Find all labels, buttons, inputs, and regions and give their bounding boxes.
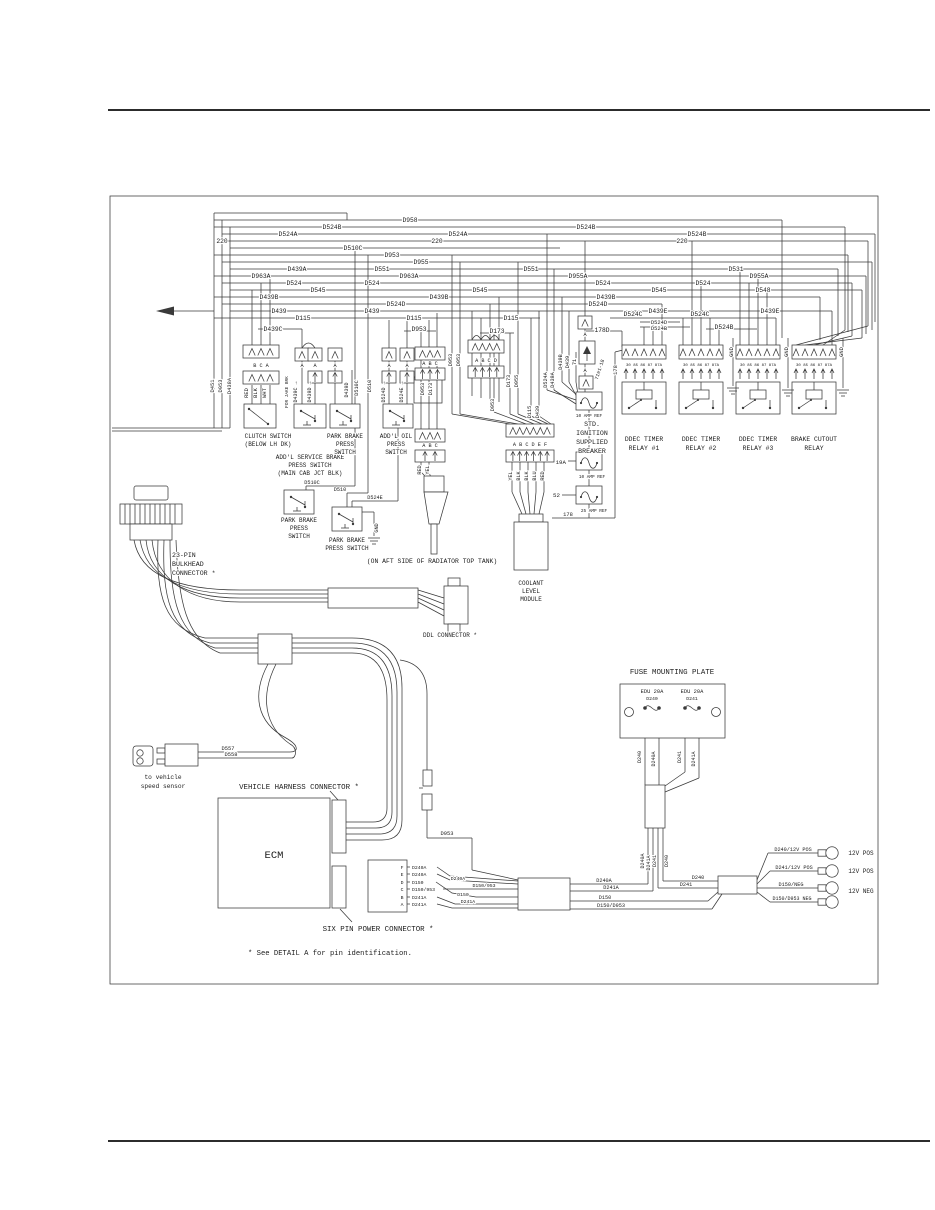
wire-label: D115 [295,315,310,322]
diode-block [579,341,595,364]
wire-label: 71#1-18 [594,359,606,381]
ring-terminal-12v-neg [818,896,838,908]
ground-icon [368,538,380,544]
wire-label: D558 [225,752,238,758]
wire-label: BLK [516,470,522,480]
harness-path [437,904,518,908]
pin-label: A [300,363,304,369]
inline-connector [423,770,432,786]
component-label: BRAKE CUTOUT [791,436,837,443]
component-label: PRESS [290,525,308,532]
connector-row [243,371,279,384]
wire-label: D241A [603,885,619,891]
connector-row [243,345,279,358]
component-label: 23-PIN [172,552,196,559]
note-label: * See DETAIL A for pin identification. [248,950,412,958]
harness-path [267,664,296,758]
component-label: ECM [265,850,284,862]
wire-label: D240A [651,751,657,766]
harness-path [302,343,315,348]
wire-label: D953 [384,252,399,259]
wire-label: D953 [420,383,426,395]
wire [460,414,518,424]
component-label: DDL CONNECTOR * [423,632,477,639]
breaker-10a [576,392,602,410]
wire-label: D173 [489,328,504,335]
component-label: CLUTCH SWITCH [245,433,292,440]
wire [757,892,770,902]
wire-label: D150/953 [412,887,435,893]
wire [554,390,576,404]
pin-label: A [387,363,391,369]
wire-label: D510C [344,245,363,252]
pin-label: 30 85 86 87 87A [626,364,663,368]
wire-label: D241 [677,751,683,763]
pin-label: A [313,363,317,369]
wire-label: D524A [543,371,549,387]
wire [757,871,770,884]
wire-label: 178 [563,512,573,518]
wire-label: D953 [490,399,496,411]
harness-path [400,660,427,770]
wire-label: D240/12V POS [774,847,811,853]
wire-label: D524 [695,280,710,287]
harness-path [346,653,387,822]
wire-label: D531 [728,266,743,273]
wire [757,853,768,880]
pin-label: A [583,368,587,374]
components [120,341,757,912]
wire-label: D150 [599,895,611,901]
component-label: VEHICLE HARNESS CONNECTOR * [239,784,359,792]
wire-label: D524B [651,326,668,332]
component-label: PARK BRAKE [327,433,363,440]
wire-label: D241 [686,696,698,702]
wire-label: D524A [449,231,468,238]
component-label: 12V POS [848,868,874,875]
wire-label: D439E [761,308,780,315]
component-label: (BELOW LH DK) [245,441,292,448]
wire-label: D241A [691,751,697,766]
wire [330,791,338,800]
wire-label: D439 [565,356,571,368]
connector-row [468,340,504,353]
wire-label: D439B [430,294,449,301]
component-label: LEVEL [522,588,540,595]
note-label: (ON AFT SIDE OF RADIATOR TOP TANK) [367,558,497,565]
pin-label: A B C D E F [513,442,547,448]
wire-label: 71 [572,359,578,365]
wire-label: D524D [387,301,406,308]
component-label: RELAY #3 [743,445,774,452]
wire-label: D241A [461,899,476,905]
wire-label: D955A [569,273,588,280]
wire-label: D150/NEG [779,882,804,888]
coolant-probe [424,476,448,554]
connector-row [328,348,342,361]
wire-label: D545 [310,287,325,294]
wire-label: WHT [262,387,268,397]
six-pin-power-connector [332,866,346,908]
ring-terminal-12v-pos [818,847,838,859]
component-label: MODULE [520,596,542,603]
wire-label: D524C [691,311,710,318]
wire-label: D963A [252,273,271,280]
wire-label: D439C [264,326,283,333]
wire-label: D524 [286,280,301,287]
inline-connector [422,794,432,810]
wire [418,590,444,598]
component-label: EDU 20A [641,689,664,695]
harness-path [259,664,297,752]
component-label: SUPPLIED [576,439,608,446]
wire-label: D240 [646,696,658,702]
component-label: 12V POS [848,850,874,857]
pin-label: A [583,332,587,338]
fuse-output-junction [645,785,665,828]
brake-cutout-relay [792,345,836,414]
wire-label: D439D [344,382,350,397]
component-label: SIX PIN POWER CONNECTOR * [323,926,434,934]
component-label: PRESS SWITCH [325,545,369,552]
component-label: PRESS [336,441,354,448]
bulkhead-connector [120,486,182,540]
pin-label: F [401,865,404,871]
wire-label: 220 [216,238,228,245]
wire-label: D439A [550,371,556,387]
wire-label: D953 [441,831,454,837]
clutch-switch-box [244,404,276,428]
component-label: BREAKER [578,448,606,455]
component-label: DDEC TIMER [682,436,721,443]
wire [665,778,699,792]
component-label: to vehicle [144,774,181,781]
component-label: 10 AMP REF [579,475,606,480]
wire-label: D953 [456,354,462,366]
harness-junction [258,634,292,664]
component-label: RELAY [804,445,823,452]
wire-label: D451 [210,380,216,393]
component-label: (MAIN CAB JCT BLK) [278,470,343,477]
wire-label: D524E [367,495,383,501]
manual-page: D958D524BD524BD524AD524AD524B220220220D5… [0,0,935,1210]
wire-label: D953 [448,354,454,366]
coolant-level-module [514,514,548,570]
wire-label: D439 [364,308,379,315]
wire-label: D240A [412,872,427,878]
wire-label: GND [374,523,380,532]
connector-row [506,424,554,437]
connector-row [415,347,445,360]
pin-label: 30 85 86 87 87A [796,364,833,368]
harness-path [437,897,518,904]
component-label: PARK BRAKE [281,517,317,524]
wire-label: D241 [652,855,658,867]
component-label: STD. [584,421,600,428]
pin-label: B [401,895,404,901]
wire-label: FOR JAKE BRK [285,376,290,408]
wire-label: D510 [334,487,346,493]
component-label: 10 AMP REF [576,414,603,419]
wire-label: D545 [472,287,487,294]
connector-row [415,450,445,462]
wire-label: BLK [253,387,259,397]
component-label: SWITCH [334,449,356,456]
wire-label: D545 [651,287,666,294]
component-label: 25 AMP REF [581,509,608,514]
wire-label: D439A [288,266,307,273]
pin-label: A [333,363,337,369]
connector-row [382,348,396,361]
wire-label: D439D → [307,381,313,402]
harness-wrap [328,588,418,608]
connector-row [295,348,309,361]
harness-path [437,867,518,881]
pin-label: A [405,363,409,369]
wire-label: D953 [411,326,426,333]
wire-label: D524 [595,280,610,287]
wire-label: D240A [596,878,612,884]
pin-label: A B C [422,443,438,449]
wire [418,594,444,604]
component-label: PARK BRAKE [329,537,365,544]
wire-label: D173 [506,375,512,387]
ddec-timer-relay-2 [679,345,723,414]
harness-path [472,336,499,341]
component-label: PRESS SWITCH [288,462,332,469]
wire-label: D955 [514,375,520,387]
wire-label: D551 [523,266,538,273]
wire-label: D524C [624,311,643,318]
wire-label: D439E [649,308,668,315]
wire-label: D958 [402,217,417,224]
wire-label: BLU [532,471,538,480]
wire [534,492,536,514]
breaker-52 [576,486,602,504]
pin-label: A B C D [475,358,497,364]
wiring-diagram: D958D524BD524BD524AD524AD524B220220220D5… [0,0,935,1210]
wire-label: D510 [367,380,373,392]
component-label: ADD'L OIL [380,433,413,440]
wire-label: D955A [750,273,769,280]
component-label: SWITCH [385,449,407,456]
fuse-mounting-plate [620,684,725,738]
wire-label: D524B [688,231,707,238]
wire-label: D439C → [293,381,299,402]
wire-label: D150 [457,892,469,898]
wire-label: D240 [692,875,704,881]
wire-label: GND [784,347,790,357]
wire-label: D240A [451,876,466,882]
wire-label: D524B [577,224,596,231]
wire-label: D551 [374,266,389,273]
harness-path [346,643,397,834]
vehicle-harness-connector [332,800,346,853]
wire-label: D955 [413,259,428,266]
component-label: EDU 20A [681,689,704,695]
wire [708,892,718,901]
connector-row [468,366,504,378]
wire-label: D524B [323,224,342,231]
wire-label: D241/12V POS [775,865,812,871]
wire [665,772,685,786]
wire-label: D115 [503,315,518,322]
wire-label: BLK [524,470,530,480]
wire-label: D115 [406,315,421,322]
component-label: CONNECTOR * [172,570,216,577]
wire [452,414,510,424]
pin-label: A B C [422,361,438,367]
component-label: SWITCH [288,533,310,540]
wire-label: D524D → [381,381,387,402]
wire-label: D439 [271,308,286,315]
wire-label: YEL [508,471,514,480]
wire-label: YEL [425,465,431,474]
wire [528,492,530,514]
ddec-timer-relay-1 [622,345,666,414]
ring-terminal-12v-neg [818,882,838,894]
wire-label: 178 [613,365,619,375]
wire-label: D438A [227,377,233,394]
wire-label: D439 [535,406,541,418]
wire [539,492,544,514]
ring-terminal-12v-pos [818,865,838,877]
connector-row [578,316,592,329]
component-label: IGNITION [576,430,608,437]
wire-label: D173 [428,383,434,395]
wire-label: D510C [304,480,320,486]
wire-label: GND [839,347,845,357]
pin-label: A [401,902,404,908]
wire-label: D439B [260,294,279,301]
wire-label: D963A [400,273,419,280]
wire-label: D150/953 [472,883,495,889]
wire-label: D439B [558,354,564,370]
pin-label: C [401,887,404,893]
speed-sensor [133,744,198,766]
component-label: speed sensor [141,783,186,790]
wire-label: GND [729,347,735,357]
wire-label: 52 [553,492,560,499]
wire-label: D150/D953 [597,903,625,909]
component-label: FUSE MOUNTING PLATE [630,669,715,677]
component-label: COOLANT [518,580,544,587]
wire-label: RED [540,471,546,480]
wire [340,909,352,922]
wire-label: D524 [364,280,379,287]
pin-label: D [401,880,404,886]
power-junction-box [518,878,570,910]
wire-label: RED [244,388,250,398]
component-label: RELAY #1 [629,445,660,452]
wire-label: D240A [412,865,427,871]
wire-label: D548 [755,287,770,294]
wire-label: D524E → [399,381,405,402]
left-arrow-icon [156,307,174,316]
wire [512,492,522,514]
component-label: RELAY #2 [686,445,717,452]
component-label: DDEC TIMER [625,436,664,443]
pin-label: B C A [253,363,269,369]
wire-label: 220 [676,238,688,245]
wire-label: D524D [589,301,608,308]
wire-label: D524A [279,231,298,238]
pin-label: E [401,872,404,878]
page-rules [108,110,930,1141]
wire-label: 220 [431,238,443,245]
ddl-connector [444,578,468,632]
wire-label: D241A [412,895,427,901]
pin-label: 30 85 86 87 87A [683,364,720,368]
wire-label: D510C [354,380,360,396]
harness-path [346,648,392,828]
component-label: BULKHEAD [172,561,204,568]
wire [805,338,862,345]
pin-label: 30 85 86 87 87A [740,364,777,368]
wire-label: D115 [527,406,533,418]
wire-label: 178D [594,327,609,334]
wire-label: D150 [412,880,424,886]
wire-label: D953 [218,380,224,393]
wire-label: D150/D953 NEG [772,896,811,902]
ground-icon [837,390,849,396]
connector-row [415,429,445,442]
component-label: 12V NEG [848,888,874,895]
terminal-junction-box [718,876,757,894]
component-label: PRESS [387,441,405,448]
connector-row [308,348,322,361]
wire-label: 19A [556,459,567,466]
wire-label: D439B [597,294,616,301]
wire-label: D240 [664,855,670,867]
wire-label: D524B [715,324,734,331]
wire-label: D241A [412,902,427,908]
component-label: DDEC TIMER [739,436,778,443]
wire-label: D241 [680,882,692,888]
connector-row [400,348,414,361]
ddec-timer-relay-3 [736,345,780,414]
wire-label: D240 [637,751,643,763]
wire-label: RED [417,465,423,474]
connector-row [579,376,593,389]
